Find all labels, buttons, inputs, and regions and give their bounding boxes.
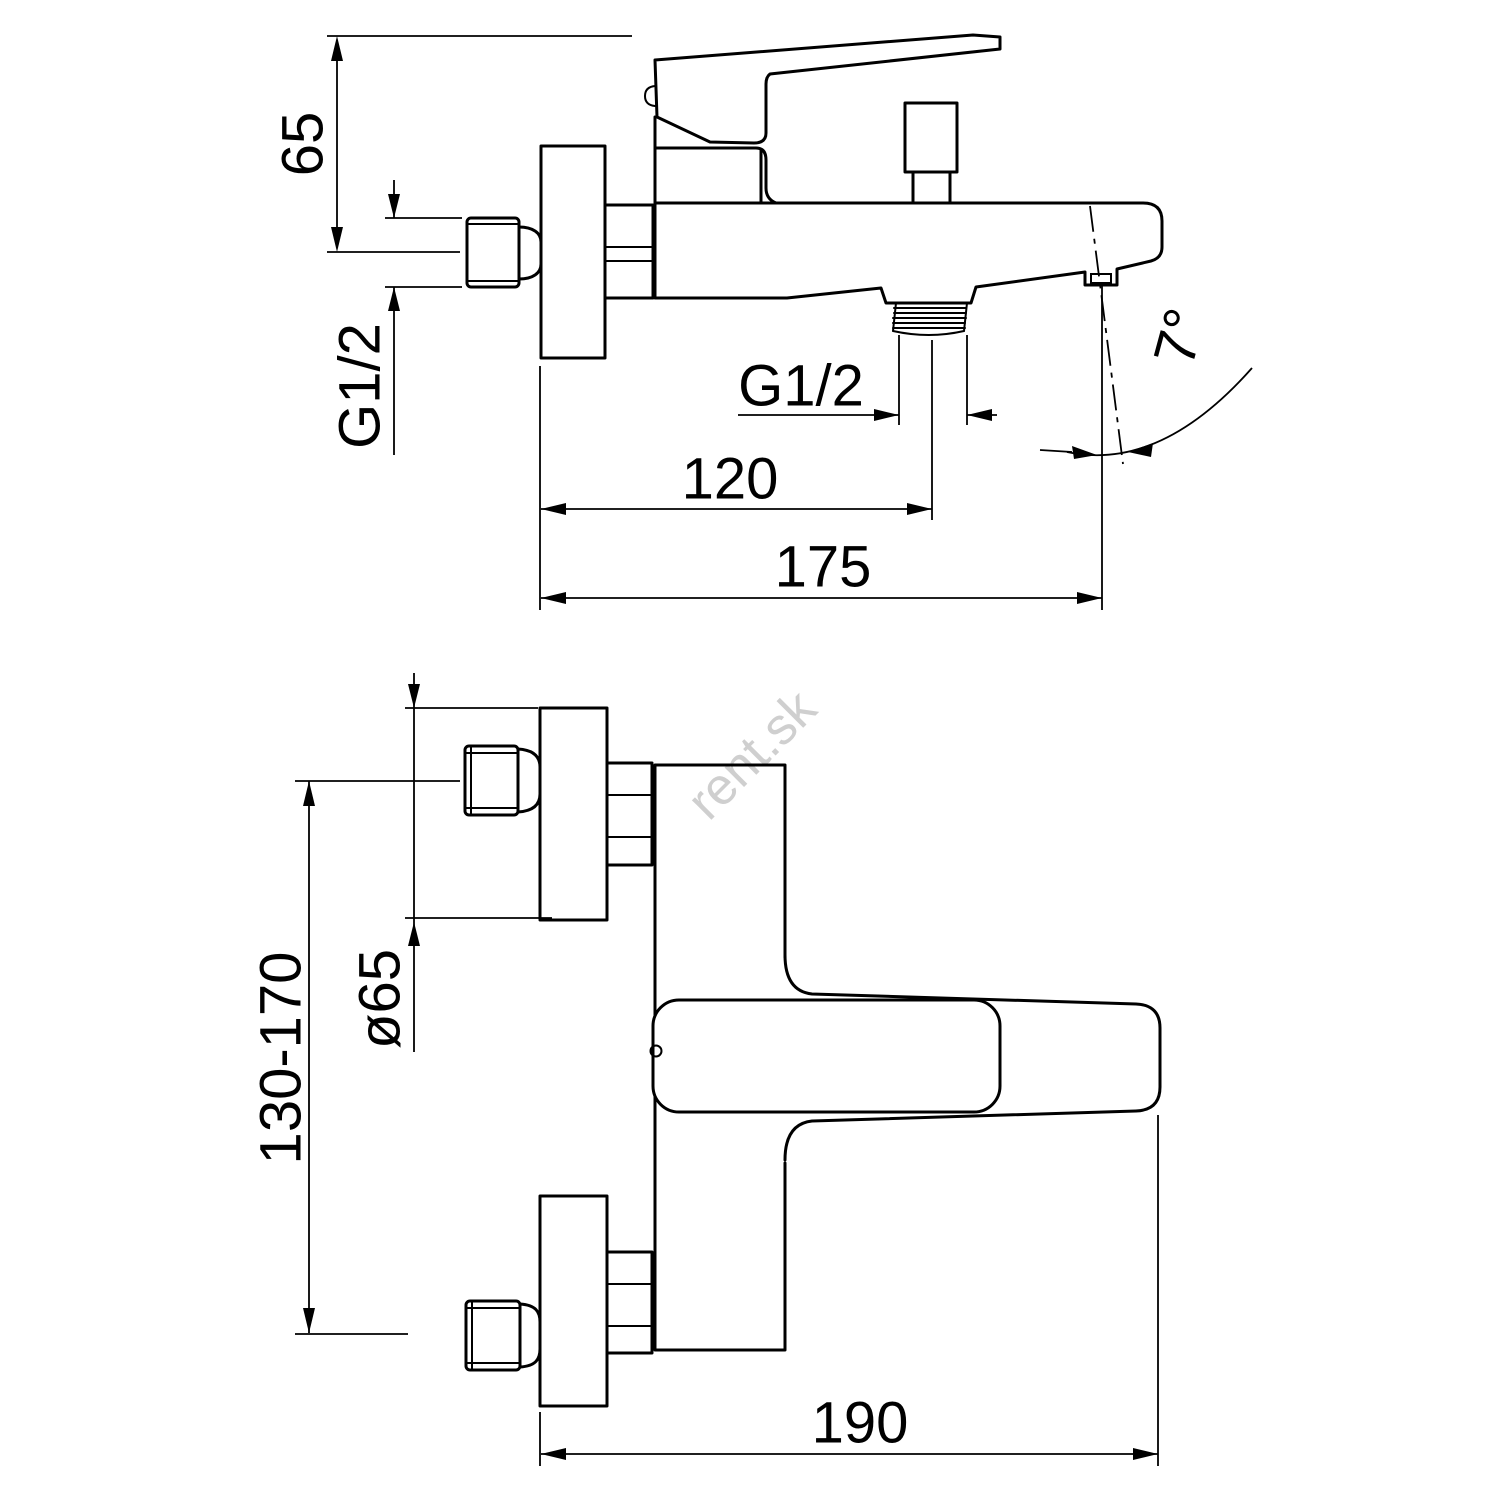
dim-outlet-thread: G1/2: [738, 335, 997, 425]
angle-arc: [1067, 368, 1252, 455]
angle-arc-tail: [1040, 450, 1072, 452]
spout-reach-label: 190: [812, 1391, 909, 1456]
supply-spacing-label: 130-170: [249, 952, 314, 1165]
dim-wall-thread: G1/2: [328, 180, 463, 455]
upper-escutcheon-plate: [540, 708, 607, 920]
lower-nipple-neck: [520, 1304, 540, 1367]
outlet-offset-label: 120: [682, 447, 779, 512]
outlet-thread-label: G1/2: [738, 354, 864, 419]
lower-escutcheon-plate: [540, 1196, 607, 1406]
side-view: 7° 65 G1/2 G1/2: [271, 35, 1253, 610]
shower-outlet-thread: [893, 303, 967, 335]
lower-hex-nut: [607, 1252, 652, 1353]
upper-hex-nut: [607, 763, 652, 865]
drawing-canvas: 7° 65 G1/2 G1/2: [0, 0, 1500, 1500]
handle-plan-outline: [653, 1000, 1000, 1112]
lower-supply-nipple: [466, 1301, 520, 1370]
dim-outlet-offset-120: 120: [540, 340, 932, 610]
handle-dome-detail: [645, 86, 655, 106]
spout-angle-label: 7°: [1141, 302, 1218, 372]
wall-thread-label: G1/2: [328, 323, 393, 449]
total-depth-label: 175: [775, 535, 872, 600]
diverter-stem: [913, 172, 950, 203]
escutcheon-diameter-label: ø65: [348, 949, 413, 1049]
angle-arc-arrowhead: [1072, 446, 1097, 459]
plan-view: rent.sk ø65: [249, 673, 1161, 1466]
body-spout-outline: [655, 203, 1162, 303]
dim-supply-spacing: 130-170: [249, 781, 461, 1334]
supply-nipple: [467, 218, 519, 287]
upper-supply-nipple: [465, 746, 518, 815]
faucet-technical-drawing: 7° 65 G1/2 G1/2: [0, 0, 1500, 1500]
upper-nipple-neck: [518, 749, 540, 812]
supply-nipple-neck: [519, 227, 541, 279]
height-label: 65: [271, 112, 336, 177]
diverter-knob: [905, 103, 957, 172]
watermark-text: rent.sk: [676, 679, 828, 831]
dim-escutcheon-diameter: ø65: [348, 673, 553, 1052]
escutcheon-plate: [541, 146, 605, 358]
dim-total-depth-175: 175: [541, 535, 1102, 605]
hex-nut: [605, 205, 653, 298]
